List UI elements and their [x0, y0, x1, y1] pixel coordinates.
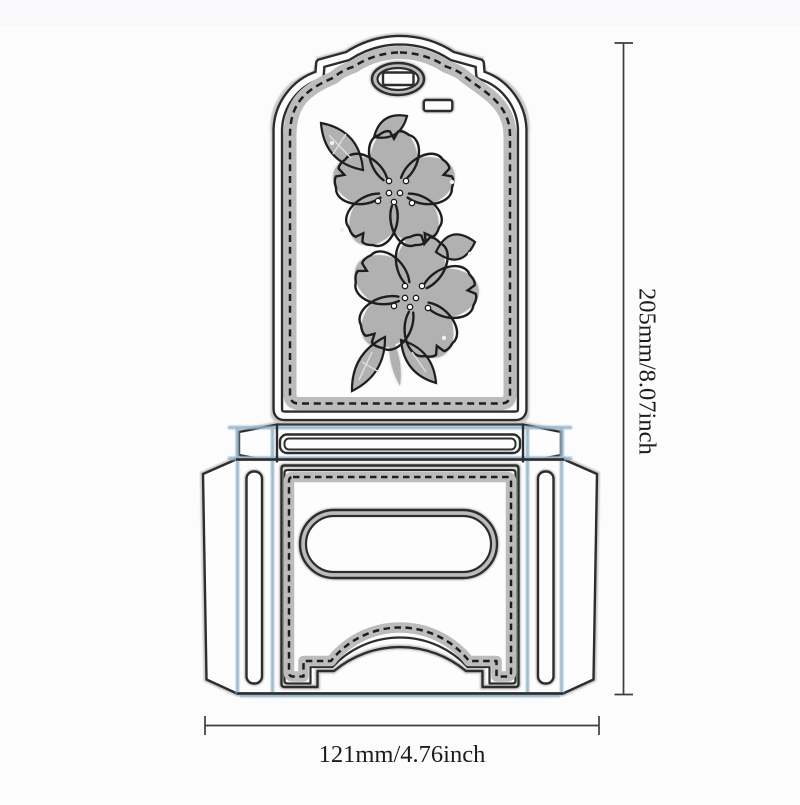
svg-text:121mm/4.76inch: 121mm/4.76inch	[319, 741, 486, 768]
svg-text:205mm/8.07inch: 205mm/8.07inch	[634, 288, 661, 455]
